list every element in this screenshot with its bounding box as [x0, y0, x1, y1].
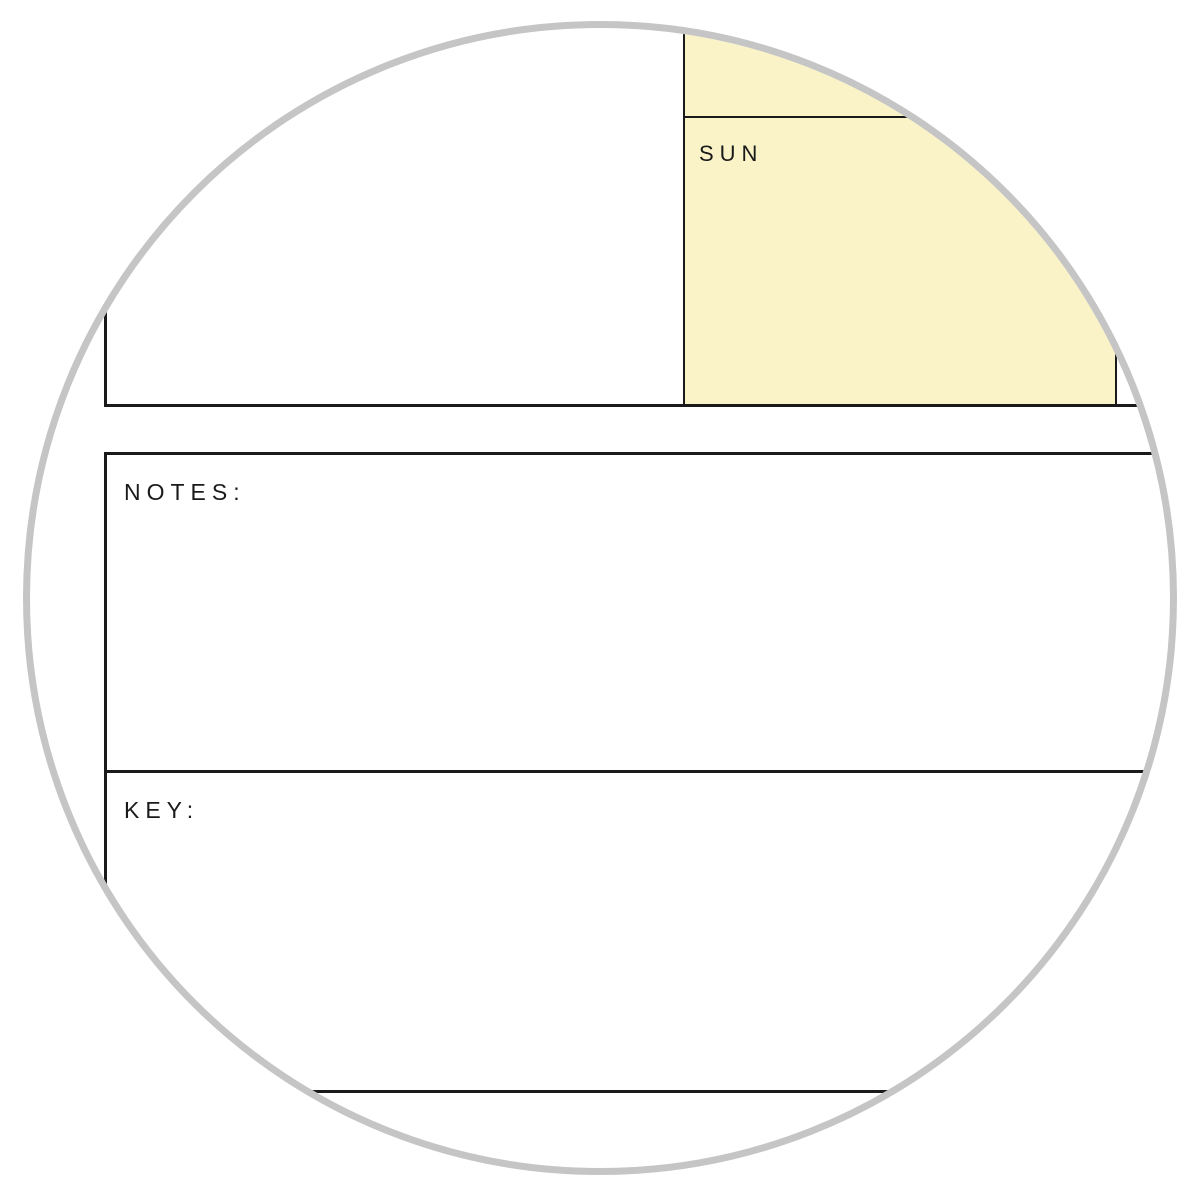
key-label: KEY: — [124, 797, 199, 824]
magnifier-circle: SUN NOTES: KEY: — [23, 21, 1177, 1175]
notes-box-left-border — [104, 452, 107, 922]
sun-header-divider — [683, 116, 1177, 118]
planner-page-detail: SUN NOTES: KEY: — [30, 28, 1170, 1168]
product-detail-image: SUN NOTES: KEY: — [0, 0, 1200, 1200]
sun-day-column — [684, 21, 1117, 407]
calendar-grid-bottom-border — [104, 404, 1170, 407]
calendar-grid-left-border — [104, 305, 107, 407]
sun-column-left-border — [683, 21, 685, 407]
notes-box-top-border — [104, 452, 1170, 455]
key-box-top-border — [104, 770, 1170, 773]
sun-column-right-border — [1115, 21, 1117, 407]
key-box-bottom-border — [30, 1090, 1170, 1093]
sun-day-label: SUN — [699, 141, 763, 167]
notes-label: NOTES: — [124, 479, 246, 506]
